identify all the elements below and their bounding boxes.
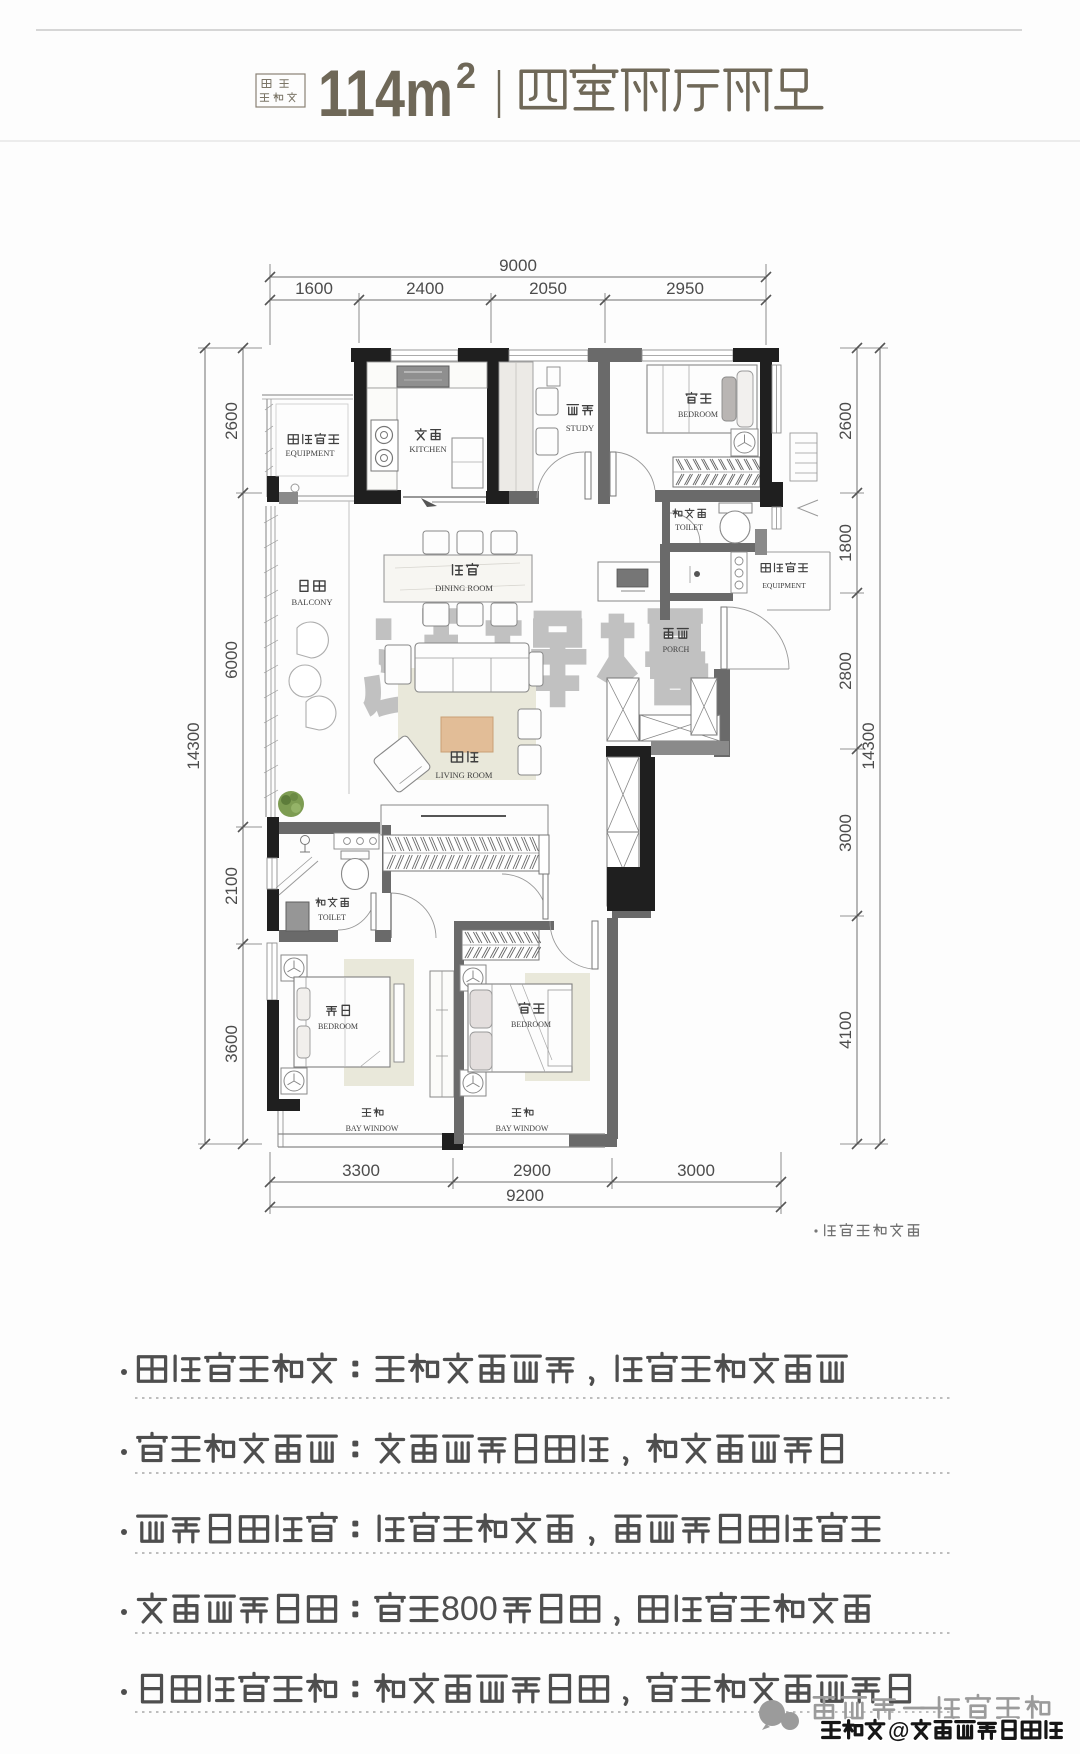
svg-text:14300: 14300 [859, 722, 878, 769]
svg-text:2600: 2600 [836, 402, 855, 440]
svg-text:3000: 3000 [836, 814, 855, 852]
svg-text:TOILET: TOILET [675, 523, 703, 532]
svg-text:STUDY: STUDY [566, 423, 594, 433]
svg-text:2900: 2900 [513, 1161, 551, 1180]
svg-text:DINING ROOM: DINING ROOM [435, 583, 493, 593]
svg-text:2600: 2600 [222, 402, 241, 440]
svg-text:BEDROOM: BEDROOM [318, 1022, 358, 1031]
svg-text:BEDROOM: BEDROOM [678, 410, 718, 419]
svg-text:9000: 9000 [499, 256, 537, 275]
svg-text:14300: 14300 [184, 722, 203, 769]
svg-text:2100: 2100 [222, 867, 241, 905]
svg-text:BEDROOM: BEDROOM [511, 1020, 551, 1029]
svg-text:PORCH: PORCH [663, 645, 690, 654]
svg-text:9200: 9200 [506, 1186, 544, 1205]
svg-text:6000: 6000 [222, 641, 241, 679]
svg-text:114m: 114m [318, 56, 453, 130]
svg-text:2: 2 [456, 55, 476, 96]
svg-text:2400: 2400 [406, 279, 444, 298]
svg-text:KITCHEN: KITCHEN [409, 444, 446, 454]
svg-text:2050: 2050 [529, 279, 567, 298]
svg-text:1800: 1800 [836, 524, 855, 562]
svg-text:4100: 4100 [836, 1011, 855, 1049]
svg-text:800: 800 [441, 1590, 498, 1628]
svg-text:EQUIPMENT: EQUIPMENT [285, 448, 335, 458]
svg-text:BAY WINDOW: BAY WINDOW [496, 1124, 549, 1133]
svg-text:2950: 2950 [666, 279, 704, 298]
svg-text:@: @ [888, 1718, 909, 1743]
svg-text:3000: 3000 [677, 1161, 715, 1180]
svg-text:2800: 2800 [836, 652, 855, 690]
svg-text:EQUIPMENT: EQUIPMENT [762, 581, 806, 590]
svg-text:BALCONY: BALCONY [291, 597, 332, 607]
svg-text:LIVING ROOM: LIVING ROOM [436, 770, 493, 780]
svg-text:1600: 1600 [295, 279, 333, 298]
svg-text:TOILET: TOILET [318, 913, 346, 922]
svg-text:BAY WINDOW: BAY WINDOW [346, 1124, 399, 1133]
svg-text:3300: 3300 [342, 1161, 380, 1180]
svg-text:3600: 3600 [222, 1025, 241, 1063]
